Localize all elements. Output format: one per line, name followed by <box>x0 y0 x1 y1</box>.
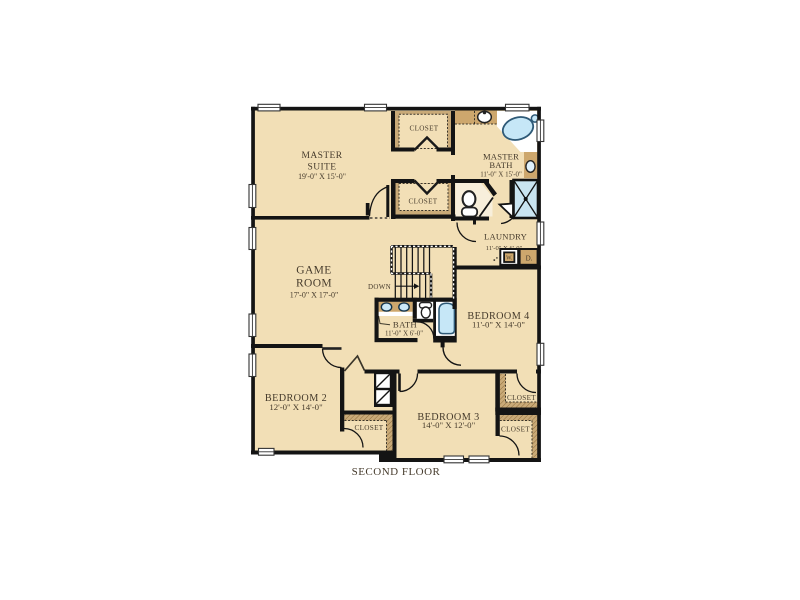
svg-text:CLOSET: CLOSET <box>507 394 536 402</box>
svg-text:GAME: GAME <box>296 265 331 277</box>
svg-text:14'-0" X 12'-0": 14'-0" X 12'-0" <box>422 420 476 430</box>
svg-text:W.: W. <box>506 256 513 262</box>
svg-text:MASTER: MASTER <box>302 151 343 161</box>
svg-text:19'-0" X 15'-0": 19'-0" X 15'-0" <box>298 172 346 181</box>
svg-text:LAUNDRY: LAUNDRY <box>484 232 527 242</box>
svg-text:ROOM: ROOM <box>296 278 332 290</box>
svg-text:DOWN: DOWN <box>368 283 391 291</box>
svg-text:CLOSET: CLOSET <box>409 198 438 206</box>
svg-text:17'-0" X 17'-0": 17'-0" X 17'-0" <box>290 291 339 300</box>
svg-text:11'-0" X 14'-0": 11'-0" X 14'-0" <box>472 320 525 330</box>
svg-text:11'-0" X 15'-0": 11'-0" X 15'-0" <box>480 172 522 179</box>
svg-text:CLOSET: CLOSET <box>355 424 384 432</box>
svg-text:CLOSET: CLOSET <box>410 125 439 133</box>
svg-text:11'-0" X 6'-0": 11'-0" X 6'-0" <box>385 331 423 338</box>
svg-text:BATH: BATH <box>489 160 512 170</box>
svg-text:CLOSET: CLOSET <box>501 426 530 434</box>
svg-text:SECOND FLOOR: SECOND FLOOR <box>352 466 441 478</box>
svg-text:D.: D. <box>526 254 533 262</box>
svg-text:SUITE: SUITE <box>308 163 337 173</box>
svg-text:12'-0" X 14'-0": 12'-0" X 14'-0" <box>269 402 323 412</box>
